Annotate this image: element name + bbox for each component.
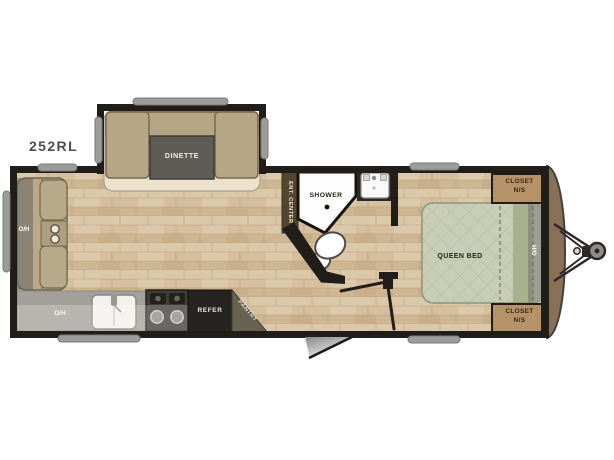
sofa bbox=[15, 178, 67, 290]
wall-bedroom-north bbox=[391, 167, 398, 226]
shower-drain bbox=[325, 205, 330, 210]
window-marker bbox=[38, 164, 77, 171]
queen-bed-label: QUEEN BED bbox=[428, 253, 492, 261]
overhead-cabinet-sofa bbox=[15, 178, 33, 290]
front-cap bbox=[547, 166, 565, 338]
model-label: 252RL bbox=[29, 139, 78, 154]
overhead-kitchen-label: O/H bbox=[46, 310, 74, 317]
window-marker bbox=[410, 163, 459, 170]
wall-top-right bbox=[259, 166, 549, 173]
hitch-pin bbox=[574, 248, 580, 254]
closet-top-line1: CLOSET bbox=[492, 177, 547, 186]
entry-door bbox=[305, 337, 352, 359]
wall-left bbox=[10, 166, 17, 338]
floorplan-252rl: 252RL DINETTE O/H O/H REFER PANTRY ENT. … bbox=[0, 0, 614, 460]
window-marker bbox=[95, 117, 102, 163]
overhead-cabinet-kitchen bbox=[17, 305, 188, 331]
bathroom-vanity bbox=[357, 169, 393, 201]
window-marker bbox=[133, 98, 228, 105]
refrigerator-label: REFER bbox=[188, 307, 232, 314]
overhead-bed-label: O/H bbox=[533, 235, 540, 265]
wall-bedroom-stub-cap bbox=[379, 272, 398, 279]
overhead-sofa-label: O/H bbox=[13, 227, 35, 234]
window-marker bbox=[58, 335, 140, 342]
closet-bottom-line1: CLOSET bbox=[492, 307, 547, 316]
cupholder bbox=[51, 225, 59, 233]
cupholder bbox=[51, 235, 59, 243]
dinette-bench-right bbox=[215, 112, 258, 178]
window-marker bbox=[408, 336, 460, 343]
ent-center-label: ENT. CENTER bbox=[282, 173, 298, 232]
window-marker bbox=[3, 191, 10, 272]
dinette-slideout bbox=[104, 111, 260, 191]
closet-top-line2: N/S bbox=[492, 186, 547, 195]
dinette-label: DINETTE bbox=[150, 153, 214, 161]
closet-bottom-label: CLOSET N/S bbox=[492, 307, 547, 325]
faucet bbox=[111, 294, 117, 306]
closet-bottom-line2: N/S bbox=[492, 316, 547, 325]
dinette-bench-left bbox=[106, 112, 149, 178]
shower-label: SHOWER bbox=[299, 192, 353, 199]
window-marker bbox=[261, 118, 268, 159]
floorplan-drawing bbox=[0, 0, 614, 460]
closet-top-label: CLOSET N/S bbox=[492, 177, 547, 195]
